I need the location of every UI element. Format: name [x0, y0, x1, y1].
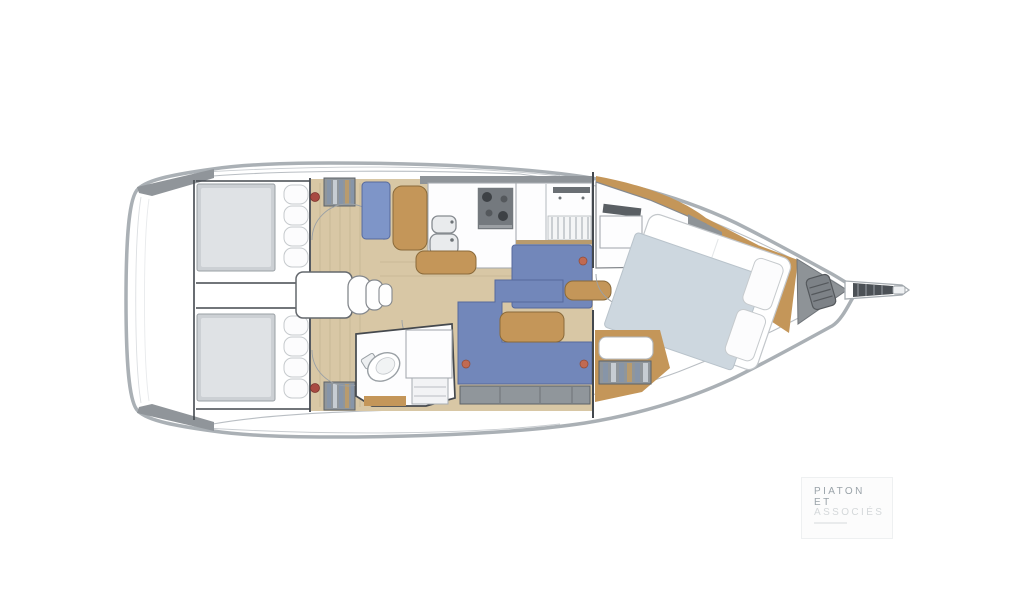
saloon [296, 176, 611, 411]
pillow [284, 358, 308, 377]
cushion-dot [580, 360, 588, 368]
galley-fridge-cabinets [516, 183, 592, 244]
forward-section [593, 172, 909, 418]
galley-sink [430, 216, 458, 255]
bow-roller-tip [893, 286, 905, 294]
galley-side-table [416, 251, 476, 274]
pillow [284, 316, 308, 335]
head-floor-grating [364, 396, 406, 406]
pillow [284, 206, 308, 225]
louvered-locker [599, 361, 651, 384]
aft-berth-top-sheet [201, 188, 271, 267]
pillow [284, 248, 308, 267]
pillow [284, 227, 308, 246]
shower-unit [406, 330, 452, 378]
aft-berth-bottom-sheet [201, 318, 271, 397]
stove [477, 187, 514, 230]
engine-compartment [196, 283, 310, 308]
aft-cabins [196, 178, 310, 412]
portlight-dot [311, 193, 320, 202]
architect-logo: PIATON ET ASSOCIÉS [801, 477, 893, 539]
settee-locker-front [460, 386, 590, 404]
head-vanity-drawers [412, 378, 448, 404]
nav-seat [362, 182, 390, 239]
cabin-bench [599, 337, 653, 359]
bowsprit [845, 281, 909, 299]
table-mid [565, 281, 611, 300]
drainer-slats [548, 216, 591, 240]
portlight-dot [311, 384, 320, 393]
table-main [500, 312, 564, 342]
logo-line-1: PIATON [814, 487, 892, 498]
cushion-dot [462, 360, 470, 368]
logo-subtext-rule [814, 522, 847, 524]
logo-line-3: ASSOCIÉS [814, 508, 892, 519]
pillow [284, 337, 308, 356]
chart-table [393, 186, 427, 250]
cushion-dot [579, 257, 587, 265]
pillow [284, 185, 308, 204]
aft-cabin-top [197, 184, 308, 271]
yacht-floor-plan: PIATON ET ASSOCIÉS [0, 0, 1024, 600]
aft-head [356, 324, 455, 406]
aft-locker-top [324, 178, 355, 206]
pillow [284, 379, 308, 398]
